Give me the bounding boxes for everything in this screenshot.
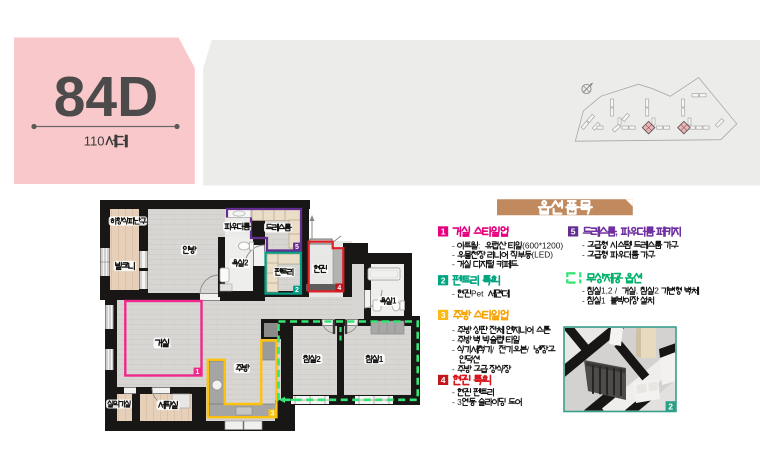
svg-text:2: 2 [295, 287, 299, 294]
svg-text:84D: 84D [54, 65, 159, 129]
svg-text:4: 4 [441, 375, 446, 385]
svg-text:2: 2 [316, 355, 321, 364]
svg-text:5: 5 [295, 244, 299, 251]
svg-text:-: - [452, 259, 455, 269]
svg-text:-: - [452, 344, 455, 354]
svg-text:1: 1 [196, 369, 200, 376]
svg-text:2: 2 [654, 286, 659, 296]
svg-text:,: , [615, 227, 618, 238]
svg-text:- 3: - 3 [452, 397, 462, 407]
svg-text:2: 2 [244, 259, 249, 268]
svg-text:/: / [492, 344, 495, 354]
svg-text:-: - [452, 387, 455, 397]
svg-text:-: - [452, 288, 455, 298]
svg-text:1: 1 [379, 355, 384, 364]
svg-text:/: / [527, 344, 530, 354]
svg-text:(LED): (LED) [531, 250, 553, 260]
svg-text:-: - [452, 325, 455, 335]
svg-text:1: 1 [441, 227, 446, 237]
svg-text:5: 5 [571, 227, 576, 237]
svg-text:3: 3 [441, 310, 446, 320]
svg-text:,: , [636, 286, 638, 296]
svg-text:2: 2 [441, 275, 446, 285]
svg-text:-: - [582, 250, 585, 260]
svg-text:-: - [582, 286, 585, 296]
svg-text:1,2 /: 1,2 / [601, 286, 618, 296]
svg-text:-: - [452, 335, 455, 345]
svg-text:1: 1 [601, 295, 606, 305]
svg-text:1: 1 [392, 297, 397, 306]
svg-text:3: 3 [270, 411, 274, 418]
svg-text:-: - [582, 240, 585, 250]
svg-text:-: - [452, 364, 455, 374]
svg-text:-: - [582, 295, 585, 305]
svg-text::: : [478, 240, 480, 250]
svg-text:110: 110 [84, 133, 105, 148]
svg-text:Pet: Pet [471, 288, 484, 298]
svg-text:2: 2 [668, 401, 673, 411]
svg-text:4: 4 [337, 285, 341, 292]
